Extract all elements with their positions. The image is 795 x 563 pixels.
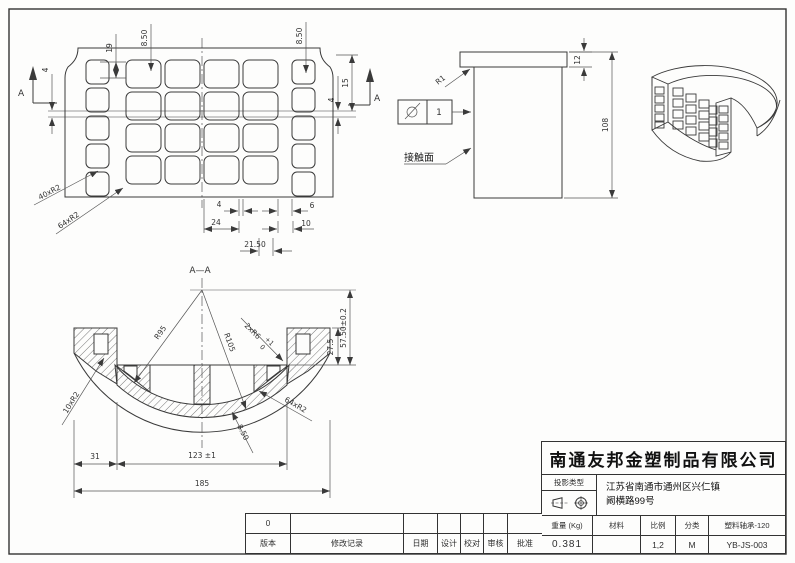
leader-64xR2-plan: 64xR2 [56, 210, 81, 231]
iso-flange-underside [731, 98, 757, 128]
leader-850-section: 8.50 [235, 423, 251, 442]
side-body [474, 67, 562, 198]
dim-31: 31 [90, 452, 100, 461]
side-view [460, 52, 567, 198]
dim-275: 27.5 [326, 338, 335, 355]
section-title: A—A [189, 266, 211, 276]
dim-123: 123 ±1 [188, 451, 216, 460]
radius-r95: R95 [152, 324, 168, 341]
dim-4-bottom: 4 [217, 200, 222, 209]
dim-4-right: 4 [327, 97, 336, 102]
revision-value: 0 [246, 514, 291, 533]
dim-108: 108 [601, 118, 610, 133]
first-angle-circle-icon [574, 496, 588, 510]
dim-24: 24 [211, 218, 221, 227]
header-weight: 重量 (Kg) [542, 516, 593, 535]
dim-4-left: 4 [41, 67, 50, 72]
section-arrow-left [29, 66, 37, 80]
weight-value: 0.381 [542, 536, 593, 553]
dim-6: 6 [310, 201, 315, 210]
dim-850-right: 8.50 [295, 27, 304, 44]
title-block-headers: 重量 (Kg) 材料 比例 分类 塑料轴承-120 [542, 516, 785, 536]
finish-value: 1 [436, 108, 442, 118]
col-version: 版本 [246, 534, 291, 553]
contact-surface-label: 接触面 [404, 151, 434, 164]
projection-cell: 投影类型 [542, 475, 597, 515]
tol-lower: 0 [258, 343, 267, 352]
address-line-1: 江苏省南通市通州区兴仁镇 [606, 481, 785, 495]
revision-record-empty [291, 514, 404, 533]
revision-table: 0 版本 修改记录 日期 设计 校对 审核 批准 [245, 513, 542, 554]
header-scale: 比例 [641, 516, 676, 535]
iso-right-wall [716, 98, 731, 156]
leader-2xR6-group: 2xR6 +1 0 [240, 318, 276, 354]
side-annotations [398, 38, 618, 198]
first-angle-frustum-icon [551, 497, 569, 509]
dim-850-left: 8.50 [140, 29, 149, 46]
iso-inner-grid-holes [673, 88, 717, 147]
radius-r1: R1 [434, 73, 448, 86]
section-arrow-right [366, 68, 374, 82]
section-label-right: A [374, 94, 381, 104]
drawing-sheet: A A [0, 0, 795, 563]
col-approve: 批准 [508, 534, 542, 553]
dim-5750: 57.50±0.2 [339, 308, 348, 348]
plan-section-arrows [29, 66, 374, 105]
iso-flange-top [652, 66, 777, 128]
scale-value: 1,2 [641, 536, 676, 553]
col-design: 设计 [438, 534, 461, 553]
dim-2150: 21.50 [244, 240, 266, 249]
header-category: 分类 [676, 516, 709, 535]
rib-center [194, 365, 210, 404]
col-check: 校对 [461, 534, 484, 553]
right-block-slot [296, 334, 310, 354]
header-material: 材料 [593, 516, 641, 535]
projection-symbols [542, 491, 596, 515]
dim-15: 15 [341, 78, 350, 88]
revision-header-row: 版本 修改记录 日期 设计 校对 审核 批准 [246, 534, 542, 553]
dim-19: 19 [105, 43, 114, 53]
col-record: 修改记录 [291, 534, 404, 553]
plan-view [48, 38, 356, 208]
drawing-number: YB-JS-003 [709, 536, 785, 553]
plan-right-holes [292, 60, 315, 196]
company-name: 南通友邦金塑制品有限公司 [542, 442, 785, 475]
dim-185: 185 [195, 479, 210, 488]
section-label-left: A [18, 89, 25, 99]
revision-entry-row: 0 [246, 514, 542, 534]
category-value: M [676, 536, 709, 553]
iso-left-wall-holes [655, 87, 664, 128]
side-flange [460, 52, 567, 67]
projection-label: 投影类型 [542, 475, 596, 491]
left-block-slot [94, 334, 108, 354]
section-view [74, 278, 356, 448]
iso-right-wall-holes [719, 106, 728, 149]
dim-10: 10 [301, 219, 311, 228]
dim-12: 12 [573, 55, 582, 65]
col-review: 审核 [484, 534, 508, 553]
part-name: 塑料轴承-120 [709, 516, 785, 535]
isometric-view [652, 66, 780, 162]
title-block: 南通友邦金塑制品有限公司 投影类型 江苏省南通市通州区兴仁镇 阚横路99号 [541, 441, 786, 554]
company-address: 江苏省南通市通州区兴仁镇 阚横路99号 [597, 475, 785, 515]
title-block-values: 0.381 1,2 M YB-JS-003 [542, 536, 785, 553]
title-block-middle-row: 投影类型 江苏省南通市通州区兴仁镇 阚横路99号 [542, 475, 785, 516]
leader-2xR6: 2xR6 [243, 321, 263, 341]
leader-10xR2: 10xR2 [61, 390, 81, 415]
address-line-2: 阚横路99号 [606, 495, 785, 509]
col-date: 日期 [404, 534, 438, 553]
material-value [593, 536, 641, 553]
leader-40xR2: 40xR2 [37, 182, 63, 201]
